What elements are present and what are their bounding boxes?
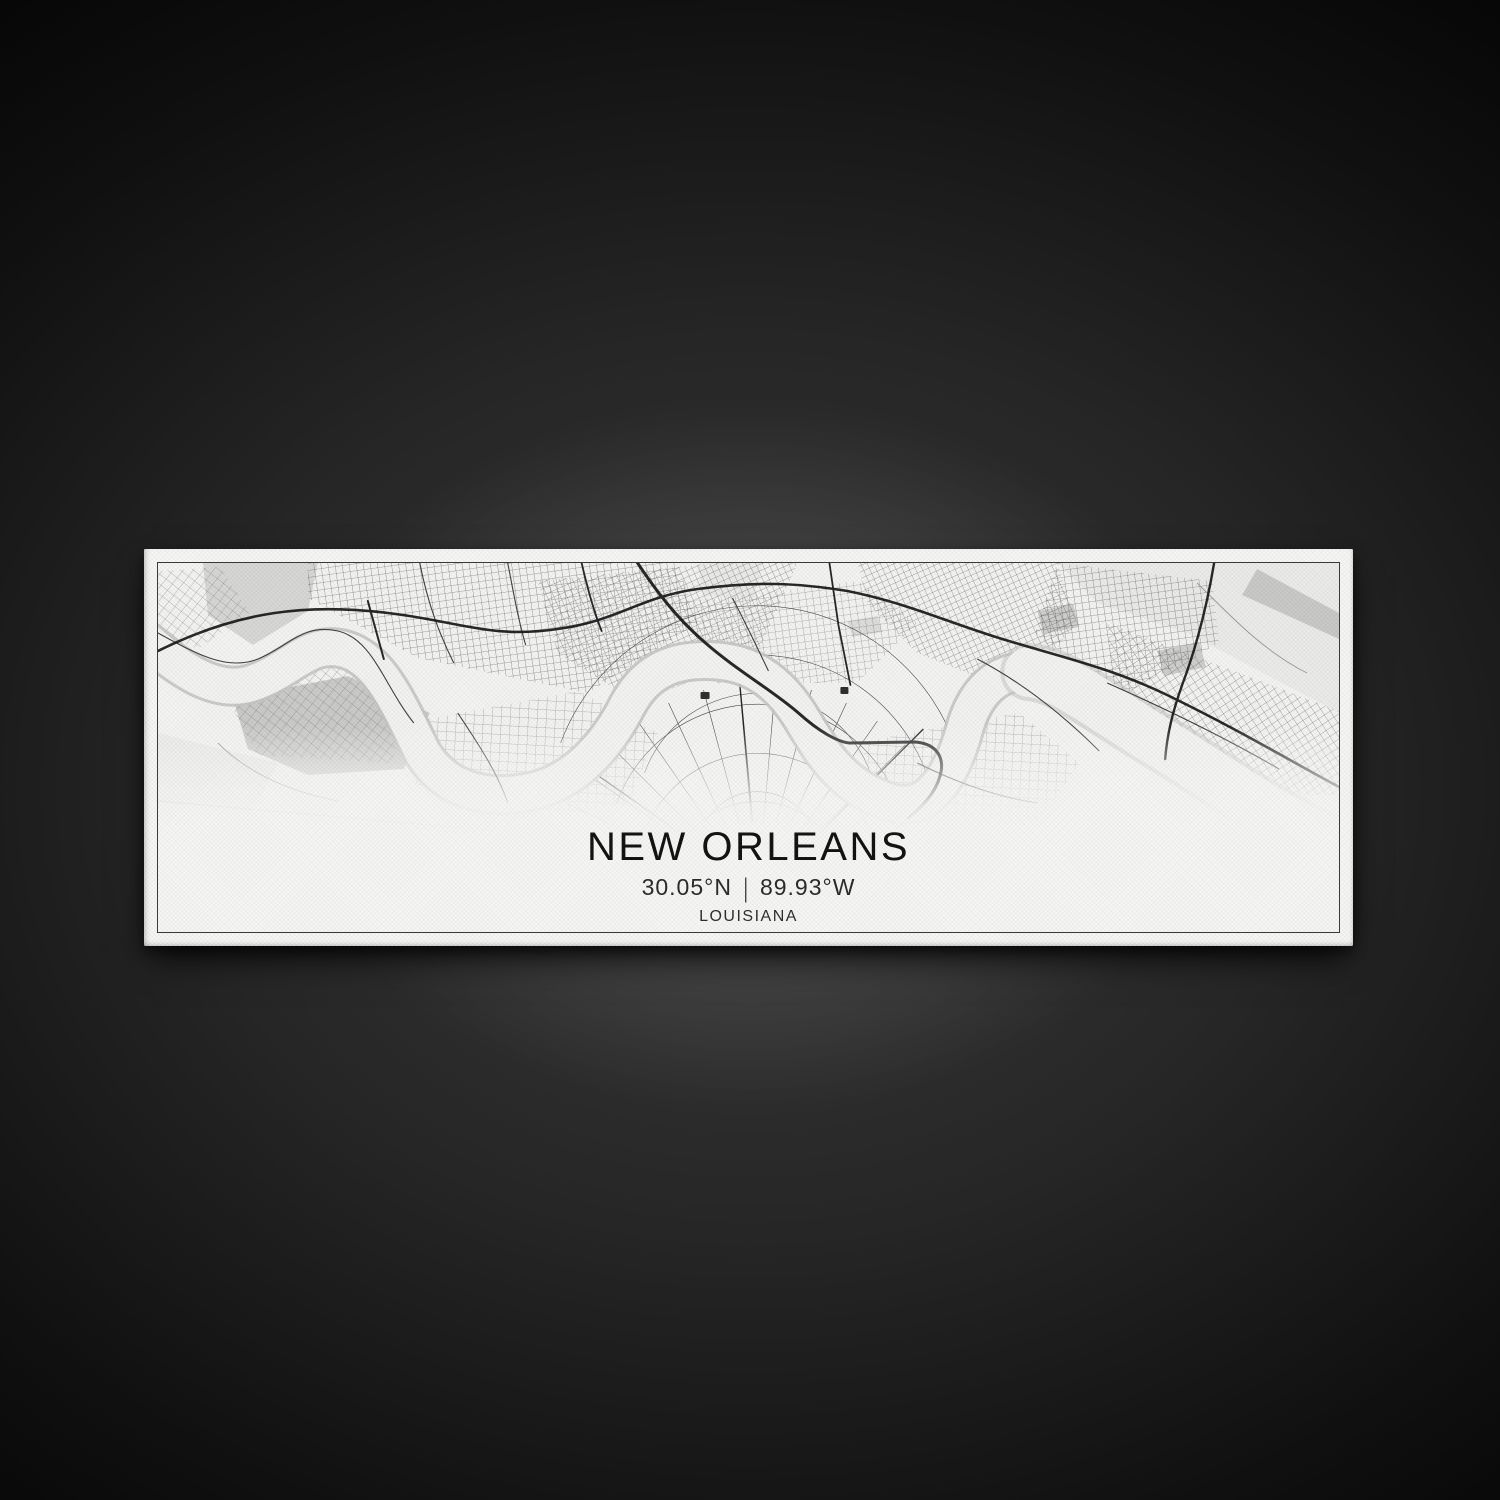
canvas-print: NEW ORLEANS 30.05°N|89.93°W LOUISIANA bbox=[144, 549, 1353, 946]
product-photo-scene: { "artwork": { "title": "NEW ORLEANS", "… bbox=[0, 0, 1500, 1500]
new-orleans-map-graphic bbox=[158, 563, 1339, 932]
fog-overlay bbox=[158, 563, 1339, 932]
map-framed-area: NEW ORLEANS 30.05°N|89.93°W LOUISIANA bbox=[157, 562, 1340, 933]
